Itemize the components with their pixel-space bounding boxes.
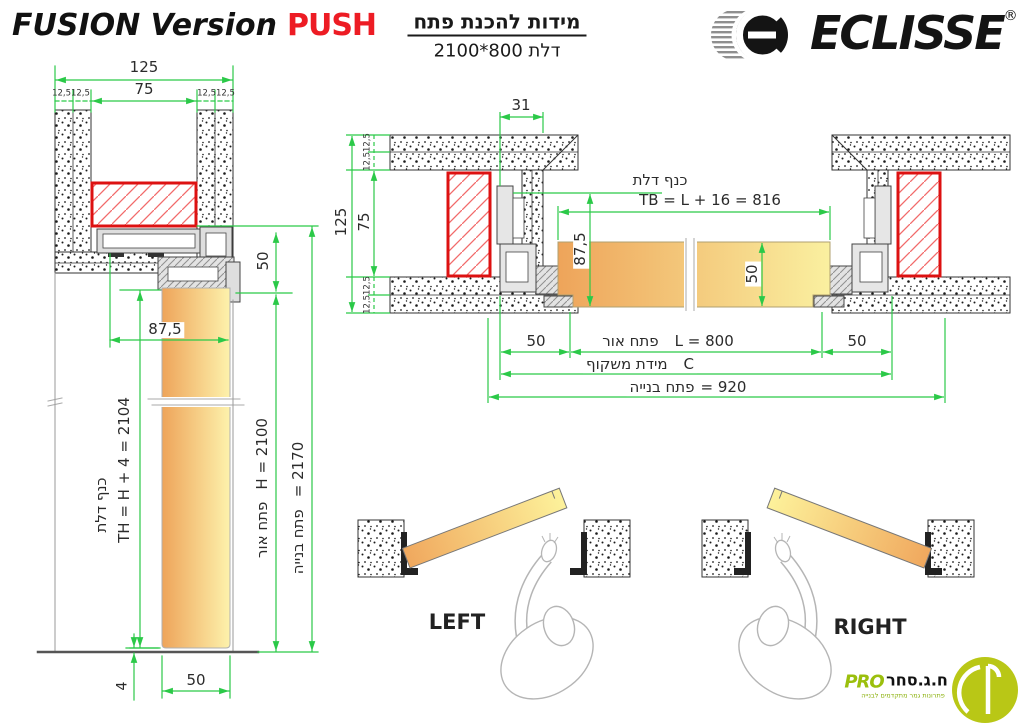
clear-height-dim: פתח אור H = 2100 xyxy=(255,418,271,558)
jamb-profile xyxy=(581,532,587,574)
clear-height-label: פתח אור xyxy=(255,502,271,558)
company-name: ח.ג.סחר xyxy=(886,673,948,690)
clear-width-dim: פתח אור L = 800 xyxy=(599,334,736,350)
frame-label: מידת משקוף xyxy=(586,357,668,373)
frame-value: C xyxy=(684,357,694,373)
wood-blocking-hatched xyxy=(92,183,196,226)
heading-hebrew: מידות להכנת פתח xyxy=(407,12,586,37)
swing-left-label: LEFT xyxy=(429,611,485,633)
jamb-foot xyxy=(734,568,751,575)
swing-diagram-left xyxy=(358,488,630,716)
wood-blocking-hatched xyxy=(448,173,490,276)
door-leaf-elevation xyxy=(162,288,230,648)
company-tagline: פתרונות גמר מתקדמים לבנייה xyxy=(861,693,945,700)
pro-logo-mark xyxy=(952,657,1018,723)
leaf-label: כנף דלת xyxy=(94,478,110,533)
vertical-section-drawing xyxy=(38,66,318,700)
build-height-label: פתח בנייה xyxy=(291,509,307,574)
pro-logo-text: PRO xyxy=(844,674,883,693)
frame-dim: מידת משקוף C xyxy=(583,357,697,373)
wall-block xyxy=(584,520,630,577)
eclisse-logo-icon xyxy=(711,8,788,63)
jamb-foot xyxy=(570,568,587,575)
drawing-sheet: FUSION VersionPUSH מידות להכנת פתח דלת 8… xyxy=(0,0,1021,723)
build-height-dim: פתח בנייה = 2170 xyxy=(291,442,307,575)
dim-track-height: 50 xyxy=(256,248,272,273)
title-text: FUSION Version xyxy=(12,8,277,43)
jamb-foot xyxy=(925,568,942,575)
dim-overlap: 87,5 xyxy=(573,229,589,268)
clear-width-label: פתח אור xyxy=(602,334,658,350)
brand-name: ECLISSE xyxy=(810,6,1004,60)
dim-leaf-thickness: 50 xyxy=(186,673,205,689)
clear-height-value: H = 2100 xyxy=(255,418,271,490)
dim-side-right: 50 xyxy=(844,334,869,350)
build-height-value: = 2170 xyxy=(291,442,307,498)
dim-core: 75 xyxy=(357,212,373,231)
build-width-label: פתח בנייה xyxy=(630,380,695,396)
break-line xyxy=(684,238,697,311)
dim-floor-gap: 4 xyxy=(116,679,131,694)
subheading-door-size: דלת 800*2100 xyxy=(434,43,561,62)
dim-overlap: 87,5 xyxy=(145,322,184,338)
eclisse-wordmark: ECLISSE ® xyxy=(810,6,1018,60)
break-line xyxy=(48,397,244,407)
leaf-height-formula: TH = H + 4 = 2104 xyxy=(117,397,133,543)
sheet-title: FUSION VersionPUSH xyxy=(12,8,376,43)
dim-inner-width: 75 xyxy=(134,82,153,98)
jamb-profile xyxy=(745,532,751,574)
dim-side-left: 50 xyxy=(523,334,548,350)
dim-finish-top: 12,512,5 xyxy=(364,133,373,171)
leaf-width-formula: TB = L + 16 = 816 xyxy=(639,193,781,209)
wood-blocking-hatched xyxy=(898,173,940,276)
dim-total-wall: 125 xyxy=(334,208,350,237)
jamb-foot xyxy=(401,568,418,575)
dim-leaf-thickness: 50 xyxy=(745,261,761,286)
leaf-label: כנף דלת xyxy=(633,173,688,189)
title-highlight: PUSH xyxy=(287,8,376,43)
dim-total-width: 125 xyxy=(130,60,159,76)
build-width-dim: פתח בנייה = 920 xyxy=(627,380,750,396)
wall-block xyxy=(358,520,404,577)
dim-jamb: 31 xyxy=(511,98,530,114)
registered-mark: ® xyxy=(1004,8,1018,24)
dim-finish-bottom: 12,512,5 xyxy=(364,276,373,314)
swing-right-label: RIGHT xyxy=(833,616,906,638)
clear-width-value: L = 800 xyxy=(675,334,734,350)
build-width-value: = 920 xyxy=(701,380,747,396)
dim-finish-left: 12,512,5 xyxy=(52,90,90,99)
dim-finish-right: 12,512,5 xyxy=(197,90,235,99)
